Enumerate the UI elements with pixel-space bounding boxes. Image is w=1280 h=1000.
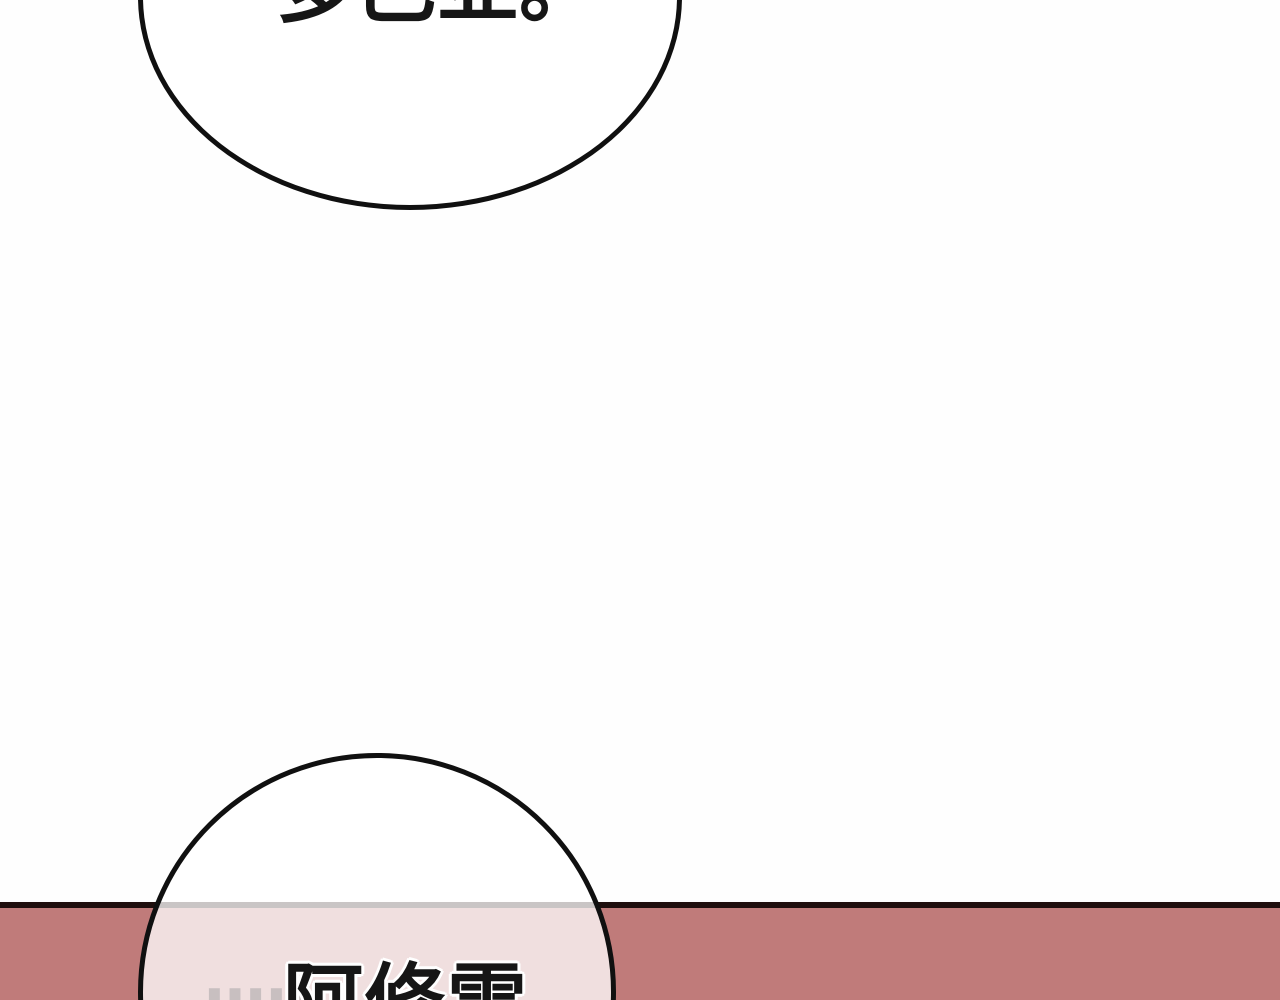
comic-panel: 多巴亚。 …… 阿修雷	[0, 0, 1280, 1000]
dialogue-text-bottom: 阿修雷	[283, 962, 529, 1000]
dialogue-text-top: 多巴亚。	[276, 0, 600, 28]
